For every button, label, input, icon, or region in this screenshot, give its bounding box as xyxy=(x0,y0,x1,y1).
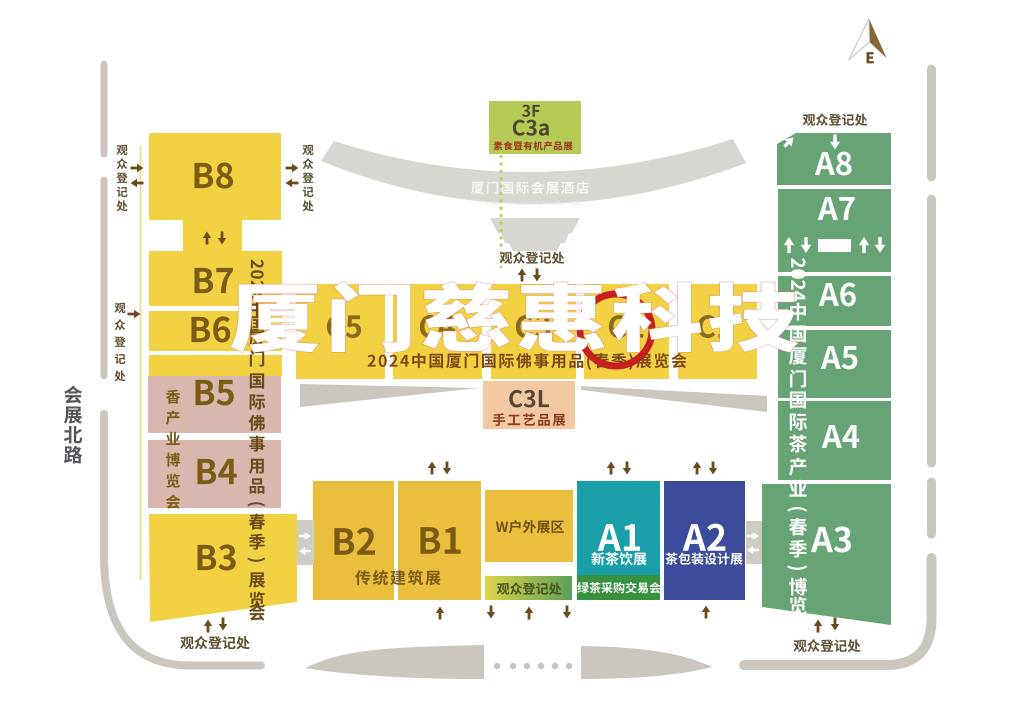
svg-text:Xiamen International Seaside H: Xiamen International Seaside Hotel xyxy=(479,200,581,207)
